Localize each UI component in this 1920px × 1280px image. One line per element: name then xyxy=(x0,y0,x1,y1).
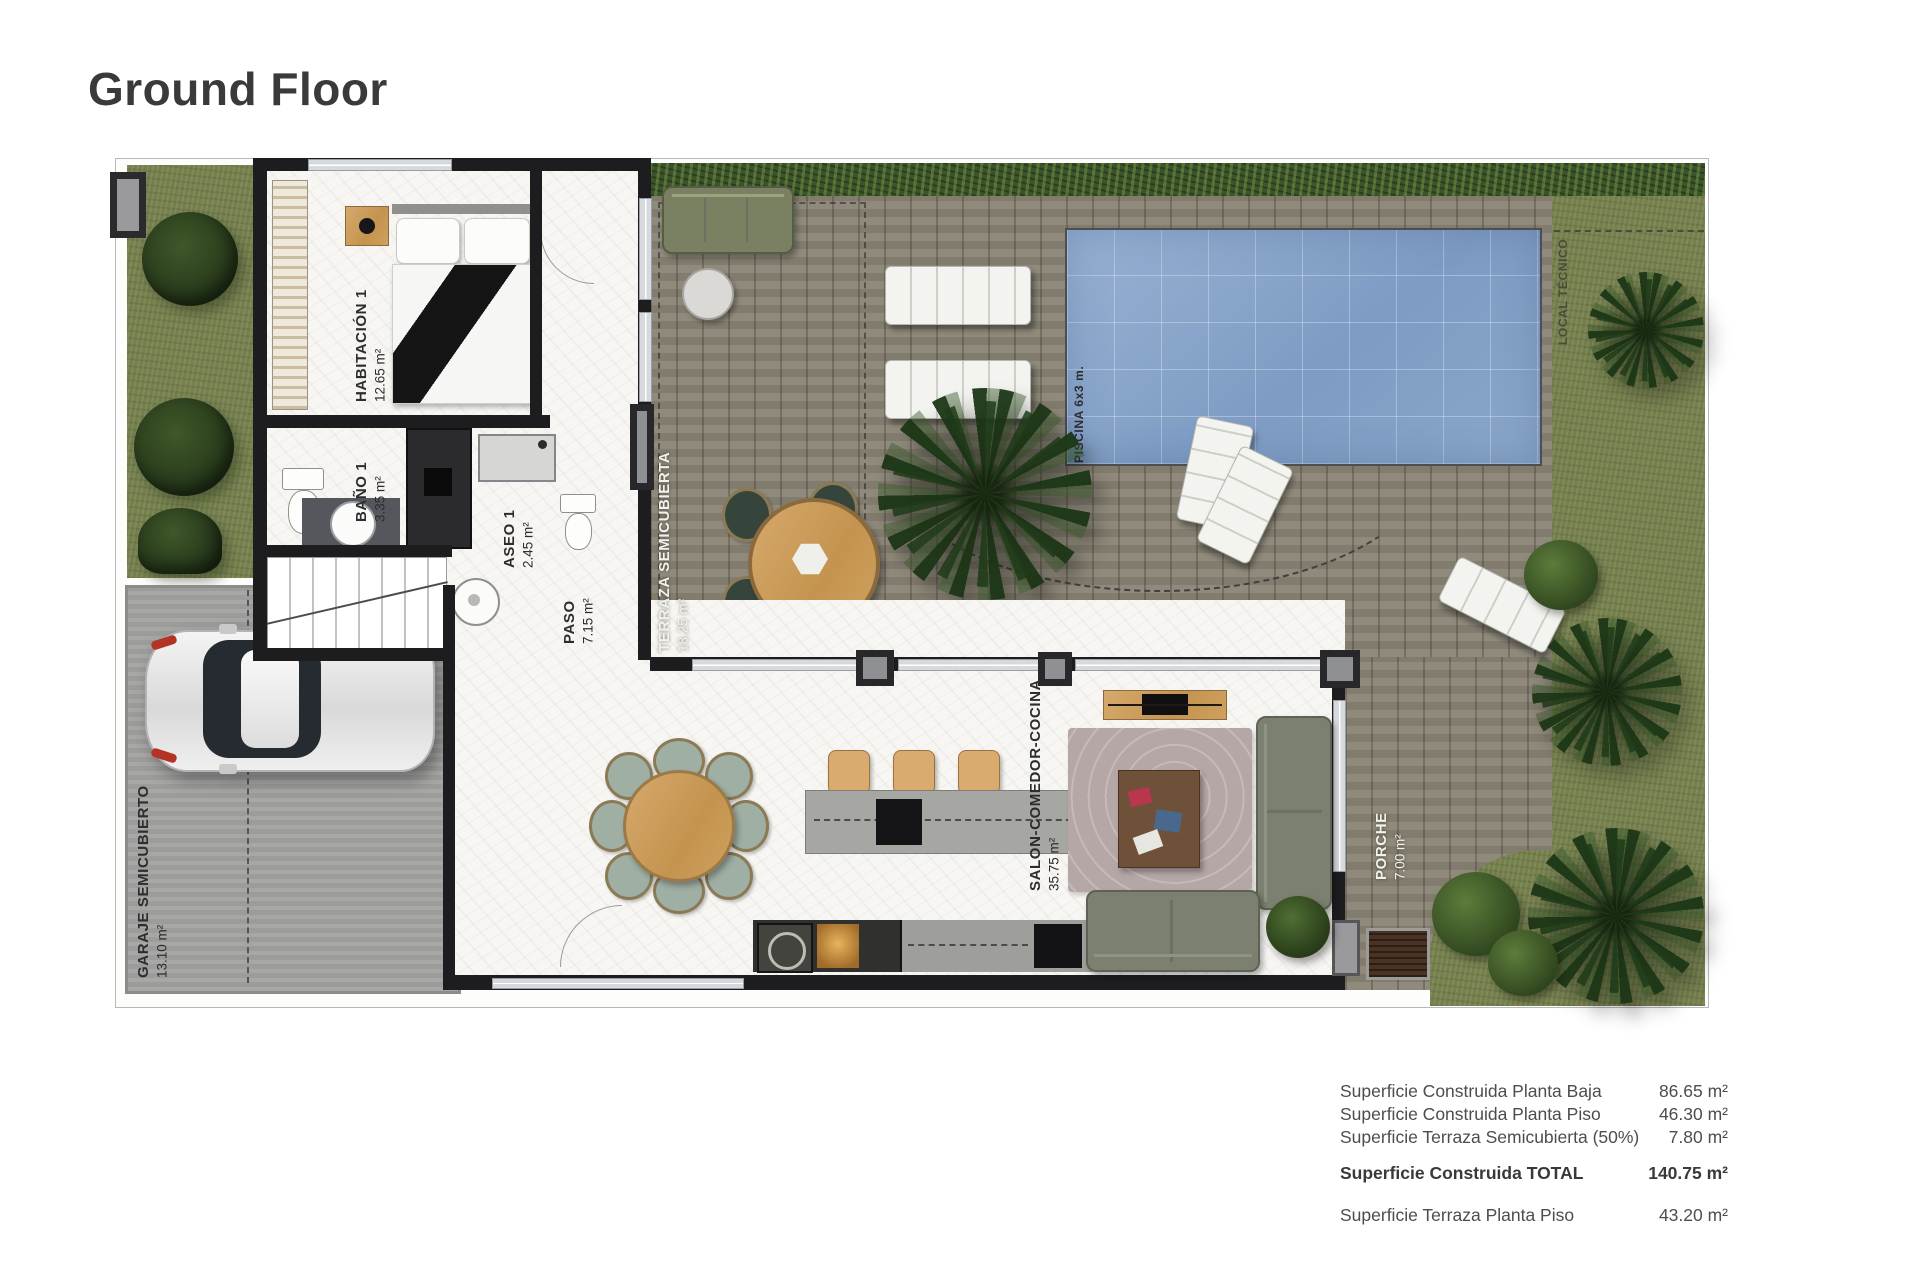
staircase xyxy=(267,557,447,650)
wardrobe xyxy=(272,180,308,410)
pillow xyxy=(396,218,460,264)
garage-label: GARAJE SEMICUBIERTO 13.10 m² xyxy=(134,808,171,978)
living-east-window xyxy=(1333,700,1346,872)
floor-plan-page: Ground Floor PISCINA 6x3 m. LOC xyxy=(0,0,1920,1280)
tree xyxy=(138,508,222,574)
garden-dashed-line xyxy=(1554,230,1704,232)
bed xyxy=(392,204,533,402)
pillar xyxy=(856,650,894,686)
outdoor-side-table xyxy=(682,268,734,320)
living-bottom-window xyxy=(492,978,744,989)
bush xyxy=(1488,930,1558,996)
wall-box xyxy=(1332,920,1360,976)
living-top-window xyxy=(692,659,860,671)
lamp xyxy=(359,218,375,234)
summary-table: Superficie Construida Planta Baja 86.65 … xyxy=(1340,1080,1728,1227)
entry-pillar xyxy=(110,172,146,238)
tree xyxy=(134,398,234,496)
aseo-toilet-tank xyxy=(560,494,596,513)
living-top-window xyxy=(898,659,1040,671)
palm-tree xyxy=(1588,272,1704,388)
car-mirror xyxy=(219,624,237,634)
nightstand xyxy=(345,206,389,246)
summary-row-total: Superficie Construida TOTAL 140.75 m² xyxy=(1340,1162,1728,1185)
sofa xyxy=(1256,716,1332,910)
summary-row: Superficie Terraza Planta Piso 43.20 m² xyxy=(1340,1204,1728,1227)
paso-label: PASO 7.15 m² xyxy=(560,556,597,644)
car-roof xyxy=(241,650,299,748)
toilet-tank xyxy=(282,468,324,490)
hedge-row xyxy=(650,163,1705,196)
outdoor-sofa xyxy=(662,186,794,254)
hall-window xyxy=(639,198,652,300)
kitchen-sink xyxy=(757,923,813,973)
shower xyxy=(406,428,472,549)
bathroom-label: BAÑO 1 3.35 m² xyxy=(352,432,389,522)
washbasin-round xyxy=(452,578,500,626)
hall-window xyxy=(639,312,652,402)
palm-tree xyxy=(1532,618,1682,766)
palm-tree xyxy=(878,388,1092,600)
duvet-with-throw xyxy=(392,264,535,404)
coffee-table xyxy=(1118,770,1200,868)
tree xyxy=(142,212,238,306)
bush xyxy=(1524,540,1598,610)
car-mirror xyxy=(219,764,237,774)
aseo-shower-tray xyxy=(478,434,556,482)
cooktop xyxy=(876,799,922,845)
dining-table-top xyxy=(623,770,735,882)
living-top-window xyxy=(1075,659,1325,671)
sun-lounger xyxy=(885,266,1031,325)
dining-set xyxy=(595,742,757,904)
counter-appliance xyxy=(1034,924,1082,968)
bedroom-window xyxy=(308,159,452,171)
indoor-plant xyxy=(1266,896,1330,958)
shower-head xyxy=(424,468,452,496)
aseo-toilet-bowl xyxy=(565,513,592,550)
summary-row: Superficie Construida Planta Piso 46.30 … xyxy=(1340,1103,1728,1126)
pillar xyxy=(630,404,654,490)
pillow xyxy=(464,218,530,264)
summary-row: Superficie Construida Planta Baja 86.65 … xyxy=(1340,1080,1728,1103)
stair-direction-line xyxy=(266,581,448,625)
bedroom-label: HABITACIÓN 1 12.65 m² xyxy=(352,272,389,402)
aseo-label: ASEO 1 2.45 m² xyxy=(500,478,537,568)
pillar xyxy=(1320,650,1360,688)
summary-row: Superficie Terraza Semicubierta (50%) 7.… xyxy=(1340,1126,1728,1149)
kitchen-counter xyxy=(753,920,1090,972)
oven xyxy=(817,924,859,968)
doormat xyxy=(1366,928,1430,980)
porch-label: PORCHE 7.00 m² xyxy=(1372,770,1409,880)
living-room-label: SALON-COMEDOR-COCINA 35.75 m² xyxy=(1026,726,1063,891)
local-tecnico-label: LOCAL TÉCNICO xyxy=(1556,240,1572,345)
tv-console xyxy=(1103,690,1227,720)
sofa xyxy=(1086,890,1260,972)
terrace-label: TERRAZA SEMICUBIERTA 18.25 m² xyxy=(655,452,692,652)
page-title: Ground Floor xyxy=(88,62,388,116)
